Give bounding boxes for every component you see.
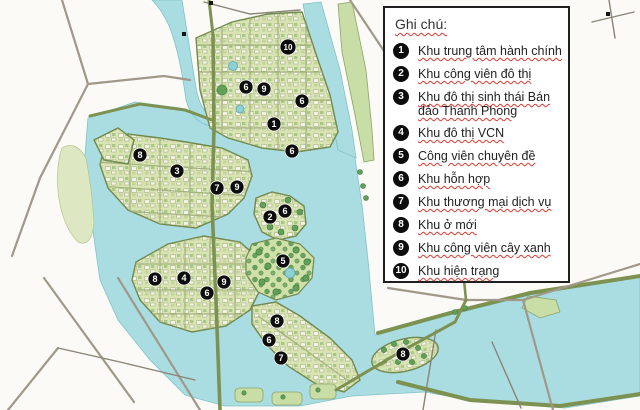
map-marker-6: 6 <box>200 286 214 300</box>
pond <box>236 105 244 113</box>
legend-item-label: Khu trung tâm hành chính <box>418 43 562 58</box>
legend-item-number-badge: 3 <box>393 89 409 105</box>
svg-text:6: 6 <box>266 335 271 345</box>
legend-item-label: Khu thương mại dịch vụ <box>418 194 551 209</box>
legend-item-number-badge: 5 <box>393 148 409 164</box>
legend-items: 1Khu trung tâm hành chính2Khu công viên … <box>393 43 562 279</box>
junction-dot <box>606 12 610 16</box>
map-marker-8: 8 <box>133 148 147 162</box>
map-marker-6: 6 <box>262 333 276 347</box>
legend-item-number-badge: 8 <box>393 217 409 233</box>
legend-item-10: 10Khu hiện trạng <box>393 263 562 279</box>
legend-panel: Ghi chú: 1Khu trung tâm hành chính2Khu c… <box>383 6 570 283</box>
marina-block <box>310 384 336 399</box>
legend-item-number-badge: 4 <box>393 125 409 141</box>
legend-item-label: Khu đô thị VCN <box>418 125 504 140</box>
legend-item-9: 9Khu công viên cây xanh <box>393 240 562 256</box>
map-marker-8: 8 <box>148 272 162 286</box>
svg-text:2: 2 <box>267 212 272 222</box>
park-pond <box>285 268 295 278</box>
svg-text:5: 5 <box>280 256 285 266</box>
svg-text:7: 7 <box>278 353 283 363</box>
map-marker-4: 4 <box>177 271 191 285</box>
legend-item-7: 7Khu thương mại dịch vụ <box>393 194 562 210</box>
legend-item-number-badge: 7 <box>393 194 409 210</box>
map-marker-3: 3 <box>170 164 184 178</box>
legend-item-8: 8Khu ở mới <box>393 217 562 233</box>
marina-block <box>272 392 302 405</box>
svg-text:6: 6 <box>243 82 248 92</box>
svg-text:6: 6 <box>204 288 209 298</box>
legend-item-label: Khu hiện trạng <box>418 263 499 278</box>
legend-item-label: Khu ở mới <box>418 217 477 232</box>
legend-item-1: 1Khu trung tâm hành chính <box>393 43 562 59</box>
map-marker-10: 10 <box>280 39 296 55</box>
svg-text:8: 8 <box>152 274 157 284</box>
legend-item-2: 2Khu công viên đô thị <box>393 66 562 82</box>
svg-text:6: 6 <box>289 146 294 156</box>
marina-block <box>235 388 263 402</box>
junction-dot <box>182 32 186 36</box>
legend-title: Ghi chú: <box>395 16 562 32</box>
svg-text:9: 9 <box>221 277 226 287</box>
junction-dot <box>209 1 213 5</box>
legend-item-label: Khu công viên cây xanh <box>418 240 551 255</box>
svg-text:10: 10 <box>284 43 293 52</box>
legend-item-number-badge: 1 <box>393 43 409 59</box>
legend-item-4: 4Khu đô thị VCN <box>393 125 562 141</box>
svg-text:1: 1 <box>271 119 276 129</box>
map-marker-6: 6 <box>285 144 299 158</box>
svg-text:3: 3 <box>174 166 179 176</box>
map-marker-8: 8 <box>396 347 410 361</box>
svg-text:7: 7 <box>214 183 219 193</box>
map-marker-9: 9 <box>230 180 244 194</box>
legend-item-5: 5Công viên chuyên đề <box>393 148 562 164</box>
map-marker-6: 6 <box>239 80 253 94</box>
legend-item-label: Khu hỗn hợp <box>418 171 490 186</box>
legend-item-number-badge: 2 <box>393 66 409 82</box>
map-marker-9: 9 <box>257 82 271 96</box>
pond <box>229 62 238 71</box>
map-marker-5: 5 <box>276 254 290 268</box>
svg-text:6: 6 <box>299 96 304 106</box>
svg-text:8: 8 <box>400 349 405 359</box>
map-marker-9: 9 <box>217 275 231 289</box>
map-marker-1: 1 <box>267 117 281 131</box>
svg-text:9: 9 <box>234 182 239 192</box>
map-marker-2: 2 <box>263 210 277 224</box>
round-park <box>217 85 227 95</box>
svg-text:8: 8 <box>274 316 279 326</box>
legend-item-label: Khu công viên đô thị <box>418 66 531 81</box>
map-marker-6: 6 <box>295 94 309 108</box>
legend-item-6: 6Khu hỗn hợp <box>393 171 562 187</box>
svg-text:4: 4 <box>181 273 186 283</box>
legend-item-number-badge: 6 <box>393 171 409 187</box>
legend-item-number-badge: 10 <box>393 263 409 279</box>
svg-text:6: 6 <box>282 206 287 216</box>
map-marker-8: 8 <box>270 314 284 328</box>
svg-text:8: 8 <box>137 150 142 160</box>
map-marker-6: 6 <box>278 204 292 218</box>
legend-item-label: Khu đô thị sinh thái Bán đảo Thanh Phong <box>418 89 562 118</box>
legend-item-3: 3Khu đô thị sinh thái Bán đảo Thanh Phon… <box>393 89 562 118</box>
svg-text:9: 9 <box>261 84 266 94</box>
legend-item-label: Công viên chuyên đề <box>418 148 535 163</box>
legend-item-number-badge: 9 <box>393 240 409 256</box>
map-marker-7: 7 <box>210 181 224 195</box>
map-marker-7: 7 <box>274 351 288 365</box>
